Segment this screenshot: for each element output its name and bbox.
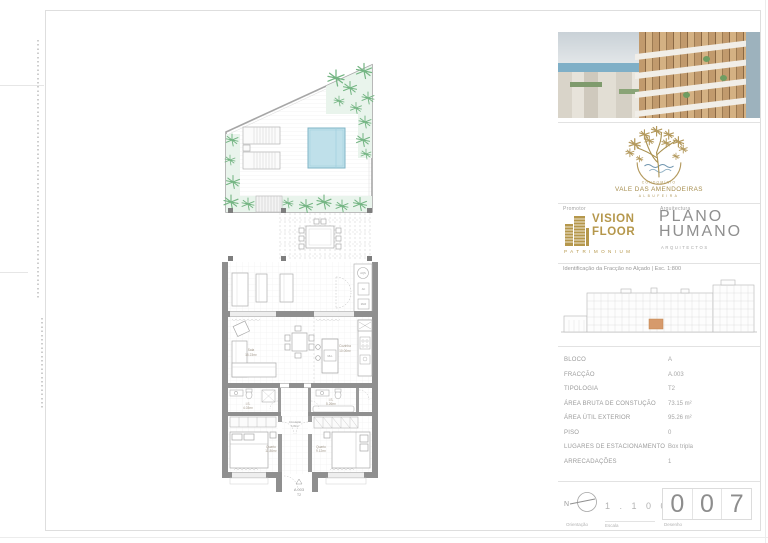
drawing-digit: 7: [721, 489, 751, 519]
is1-area: 4.03m²: [243, 406, 253, 410]
circulacao-area: 6.09m²: [291, 424, 299, 428]
row-value: Box tripla: [668, 444, 693, 450]
drawing-digit: 0: [692, 489, 722, 519]
divider: [558, 346, 760, 347]
project-pre: CONDOMÍNIO: [642, 181, 676, 185]
mll-label: MLL: [327, 354, 333, 358]
row-label: ÁREA BRUTA DE CONSTUÇÃO: [564, 401, 656, 407]
north-letter: N: [564, 501, 569, 508]
ac-label: AC: [362, 287, 366, 291]
margin-note: [41, 318, 43, 410]
row-label: ARRECADAÇÕES: [564, 459, 617, 465]
project-name: VALE DAS AMENDOEIRAS: [615, 186, 703, 193]
cozinha-name: Cozinha: [339, 344, 351, 348]
page-edge-bottom: [0, 537, 768, 538]
table-row: LUGARES DE ESTACIONAMENTOBox tripla: [558, 444, 760, 454]
unit-highlight: [649, 319, 663, 329]
entrance-type: T2: [297, 493, 301, 497]
promoter-logo: VISION FLOOR: [592, 213, 635, 239]
logo-tree-leaves: [626, 126, 687, 162]
drawing-caption: Desenho: [664, 522, 682, 527]
mlr-label: MLR: [361, 302, 367, 306]
outdoor-dining: [299, 219, 341, 249]
pool: [308, 128, 345, 168]
frame-top: [45, 10, 761, 11]
quarto2-area: 9.12m²: [316, 449, 326, 453]
frame-bottom: [45, 530, 761, 531]
row-label: BLOCO: [564, 357, 586, 363]
row-value: 1: [668, 459, 671, 465]
promoter-name-1: VISION: [592, 213, 635, 226]
terrace-furniture: [232, 273, 293, 306]
photo-glazing: [746, 32, 760, 118]
frame-left: [45, 10, 46, 531]
spec-table: BLOCOA FRACÇÃOA.003 TIPOLOGIAT2 ÁREA BRU…: [558, 351, 760, 477]
table-row: BLOCOA: [558, 357, 760, 367]
row-label: ÁREA ÚTIL EXTERIOR: [564, 415, 630, 421]
entrance-unit: A 003: [294, 487, 305, 492]
table-row: PISO0: [558, 430, 760, 440]
row-value: 0: [668, 430, 671, 436]
project-logo: CONDOMÍNIO VALE DAS AMENDOEIRAS ALBUFEIR…: [598, 126, 720, 200]
page-edge-right: [765, 0, 766, 543]
divider: [558, 263, 760, 264]
margin-note: [37, 40, 39, 300]
drawing-digit: 0: [663, 489, 692, 519]
pergola: [228, 208, 372, 261]
titleblock-footer: N Orientação 1 . 1 0 0 Escala 0 0 7 Dese…: [558, 481, 760, 530]
row-value: 73.15 m²: [668, 401, 692, 407]
building-photo: [558, 32, 760, 118]
sala-name: Sala: [248, 348, 255, 352]
frame-right: [760, 10, 761, 531]
north-compass: N: [564, 489, 602, 517]
table-row: ÁREA ÚTIL EXTERIOR95.26 m²: [558, 415, 760, 425]
elevation-caption: Identificação da Fracção no Alçado | Esc…: [563, 266, 681, 272]
fold-mark: [0, 272, 28, 273]
logo-waves: [649, 169, 671, 172]
floor-plan: AQS AC MLR: [218, 56, 382, 506]
table-row: FRACÇÃOA.003: [558, 372, 760, 382]
divider: [558, 203, 760, 204]
promoter-label: Promotor: [563, 206, 586, 212]
vision-floor-icon: [564, 214, 590, 246]
drawing-number: 0 0 7: [662, 488, 752, 520]
tech-closet: AQS AC MLR: [354, 264, 372, 312]
circulacao-name: Circulação: [289, 420, 302, 424]
aqs-label: AQS: [360, 271, 366, 275]
row-label: FRACÇÃO: [564, 372, 595, 378]
project-city: ALBUFEIRA: [639, 194, 680, 198]
row-label: TIPOLOGIA: [564, 386, 598, 392]
row-label: PISO: [564, 430, 579, 436]
architect-name-2: HUMANO: [659, 225, 742, 240]
covered-terrace: AQS AC MLR: [222, 262, 378, 314]
scale-caption: Escala: [605, 521, 655, 528]
orientation-caption: Orientação: [566, 522, 588, 527]
sala-area: 15.23m²: [245, 353, 257, 357]
row-value: T2: [668, 386, 675, 392]
architect-logo: PLANO HUMANO: [659, 210, 742, 239]
divider: [558, 122, 760, 123]
roof-terrace: [224, 64, 374, 213]
is2-area: 5.26m²: [326, 402, 336, 406]
scale-value: 1 . 1 0 0: [605, 501, 669, 511]
promoter-name-2: FLOOR: [592, 226, 635, 239]
drawing-sheet: AQS AC MLR: [0, 0, 768, 543]
elevation-drawing: [561, 278, 757, 340]
table-row: ARRECADAÇÕES1: [558, 459, 760, 469]
row-value: A.003: [668, 372, 684, 378]
row-value: A: [668, 357, 672, 363]
photo-plant: [720, 75, 727, 81]
table-row: ÁREA BRUTA DE CONSTUÇÃO73.15 m²: [558, 401, 760, 411]
row-label: LUGARES DE ESTACIONAMENTO: [564, 444, 665, 450]
stairs: [256, 196, 282, 212]
cozinha-area: 10.00m²: [339, 349, 351, 353]
photo-roof-garden: [570, 82, 602, 87]
row-value: 95.26 m²: [668, 415, 692, 421]
quarto1-area: 11.86m²: [265, 449, 276, 453]
table-row: TIPOLOGIAT2: [558, 386, 760, 396]
architect-subtitle: ARQUITECTOS: [661, 245, 709, 250]
promoter-subtitle: PATRIMONIUM: [564, 249, 633, 254]
